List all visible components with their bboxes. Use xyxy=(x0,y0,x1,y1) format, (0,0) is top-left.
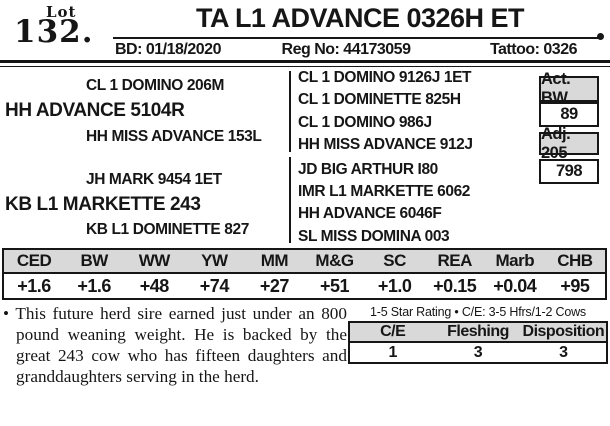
epd-value: +48 xyxy=(124,276,184,297)
star-rating-caption: 1-5 Star Rating • C/E: 3-5 Hfrs/1-2 Cows xyxy=(348,305,608,319)
epd-header: BW xyxy=(64,251,124,271)
rating-header: C/E xyxy=(350,323,435,341)
epd-value: +1.6 xyxy=(4,276,64,297)
pedigree-dam-dam: KB L1 DOMINETTE 827 xyxy=(86,221,249,239)
rating-header-row: C/E Fleshing Disposition xyxy=(350,323,606,343)
epd-value: +74 xyxy=(184,276,244,297)
pedigree-sire: HH ADVANCE 5104R xyxy=(5,100,184,122)
epd-header: SC xyxy=(365,251,425,271)
rating-value: 1 xyxy=(350,344,435,362)
pedigree-sire-sire: CL 1 DOMINO 206M xyxy=(86,77,224,95)
pedigree-entry: CL 1 DOMINO 9126J 1ET xyxy=(298,67,473,89)
pedigree-entry: CL 1 DOMINETTE 825H xyxy=(298,89,473,111)
epd-value-row: +1.6 +1.6 +48 +74 +27 +51 +1.0 +0.15 +0.… xyxy=(4,274,605,298)
header-rule-thick xyxy=(0,60,610,63)
epd-value: +1.0 xyxy=(365,276,425,297)
title-underline xyxy=(113,37,600,39)
title-underline-end-dot xyxy=(597,33,604,40)
tattoo: Tattoo: 0326 xyxy=(423,41,577,59)
pedigree-entry: JD BIG ARTHUR I80 xyxy=(298,159,473,181)
adjusted-205-label-box: Adj. 205 xyxy=(539,132,599,155)
epd-header: MM xyxy=(244,251,304,271)
pedigree-dam: KB L1 MARKETTE 243 xyxy=(5,194,201,216)
footnote-text: This future herd sire earned just under … xyxy=(15,304,347,386)
epd-value: +1.6 xyxy=(64,276,124,297)
rating-header: Disposition xyxy=(521,323,606,341)
pedigree-divider-bottom xyxy=(289,157,291,243)
epd-value: +0.15 xyxy=(425,276,485,297)
rating-value: 3 xyxy=(521,344,606,362)
epd-value: +95 xyxy=(545,276,605,297)
actual-bw-value-box: 89 xyxy=(539,102,599,127)
bullet-glyph: • xyxy=(3,304,9,323)
epd-header: YW xyxy=(184,251,244,271)
pedigree-entry: HH ADVANCE 6046F xyxy=(298,203,473,225)
pedigree-sire-dam: HH MISS ADVANCE 153L xyxy=(86,128,261,146)
actual-bw-label-box: Act. BW xyxy=(539,76,599,102)
lot-number: 132. xyxy=(14,14,94,50)
page-title: TA L1 ADVANCE 0326H ET xyxy=(115,3,605,34)
epd-value: +27 xyxy=(244,276,304,297)
catalog-page: Lot 132. TA L1 ADVANCE 0326H ET BD: 01/1… xyxy=(0,0,610,426)
sale-footnote: • This future herd sire earned just unde… xyxy=(3,303,347,387)
rating-value: 3 xyxy=(435,344,520,362)
epd-table: CED BW WW YW MM M&G SC REA Marb CHB +1.6… xyxy=(2,248,607,300)
rating-value-row: 1 3 3 xyxy=(350,343,606,362)
rating-header: Fleshing xyxy=(435,323,520,341)
epd-value: +51 xyxy=(304,276,364,297)
epd-header: CED xyxy=(4,251,64,271)
pedigree-entry: HH MISS ADVANCE 912J xyxy=(298,134,473,156)
epd-header: M&G xyxy=(304,251,364,271)
epd-header-row: CED BW WW YW MM M&G SC REA Marb CHB xyxy=(4,250,605,274)
adjusted-205-value-box: 798 xyxy=(539,159,599,184)
pedigree-great-grandparents: CL 1 DOMINO 9126J 1ET CL 1 DOMINETTE 825… xyxy=(298,67,473,248)
pedigree-entry: SL MISS DOMINA 003 xyxy=(298,226,473,248)
epd-header: CHB xyxy=(545,251,605,271)
animal-info-row: BD: 01/18/2020 Reg No: 44173059 Tattoo: … xyxy=(115,41,577,59)
pedigree-dam-sire: JH MARK 9454 1ET xyxy=(86,171,222,189)
epd-header: REA xyxy=(425,251,485,271)
epd-header: Marb xyxy=(485,251,545,271)
epd-header: WW xyxy=(124,251,184,271)
pedigree-divider-top xyxy=(289,71,291,152)
epd-value: +0.04 xyxy=(485,276,545,297)
star-rating-table: C/E Fleshing Disposition 1 3 3 xyxy=(348,321,608,364)
pedigree-entry: IMR L1 MARKETTE 6062 xyxy=(298,181,473,203)
birth-date: BD: 01/18/2020 xyxy=(115,41,269,59)
pedigree-entry: CL 1 DOMINO 986J xyxy=(298,112,473,134)
registration-number: Reg No: 44173059 xyxy=(269,41,423,59)
